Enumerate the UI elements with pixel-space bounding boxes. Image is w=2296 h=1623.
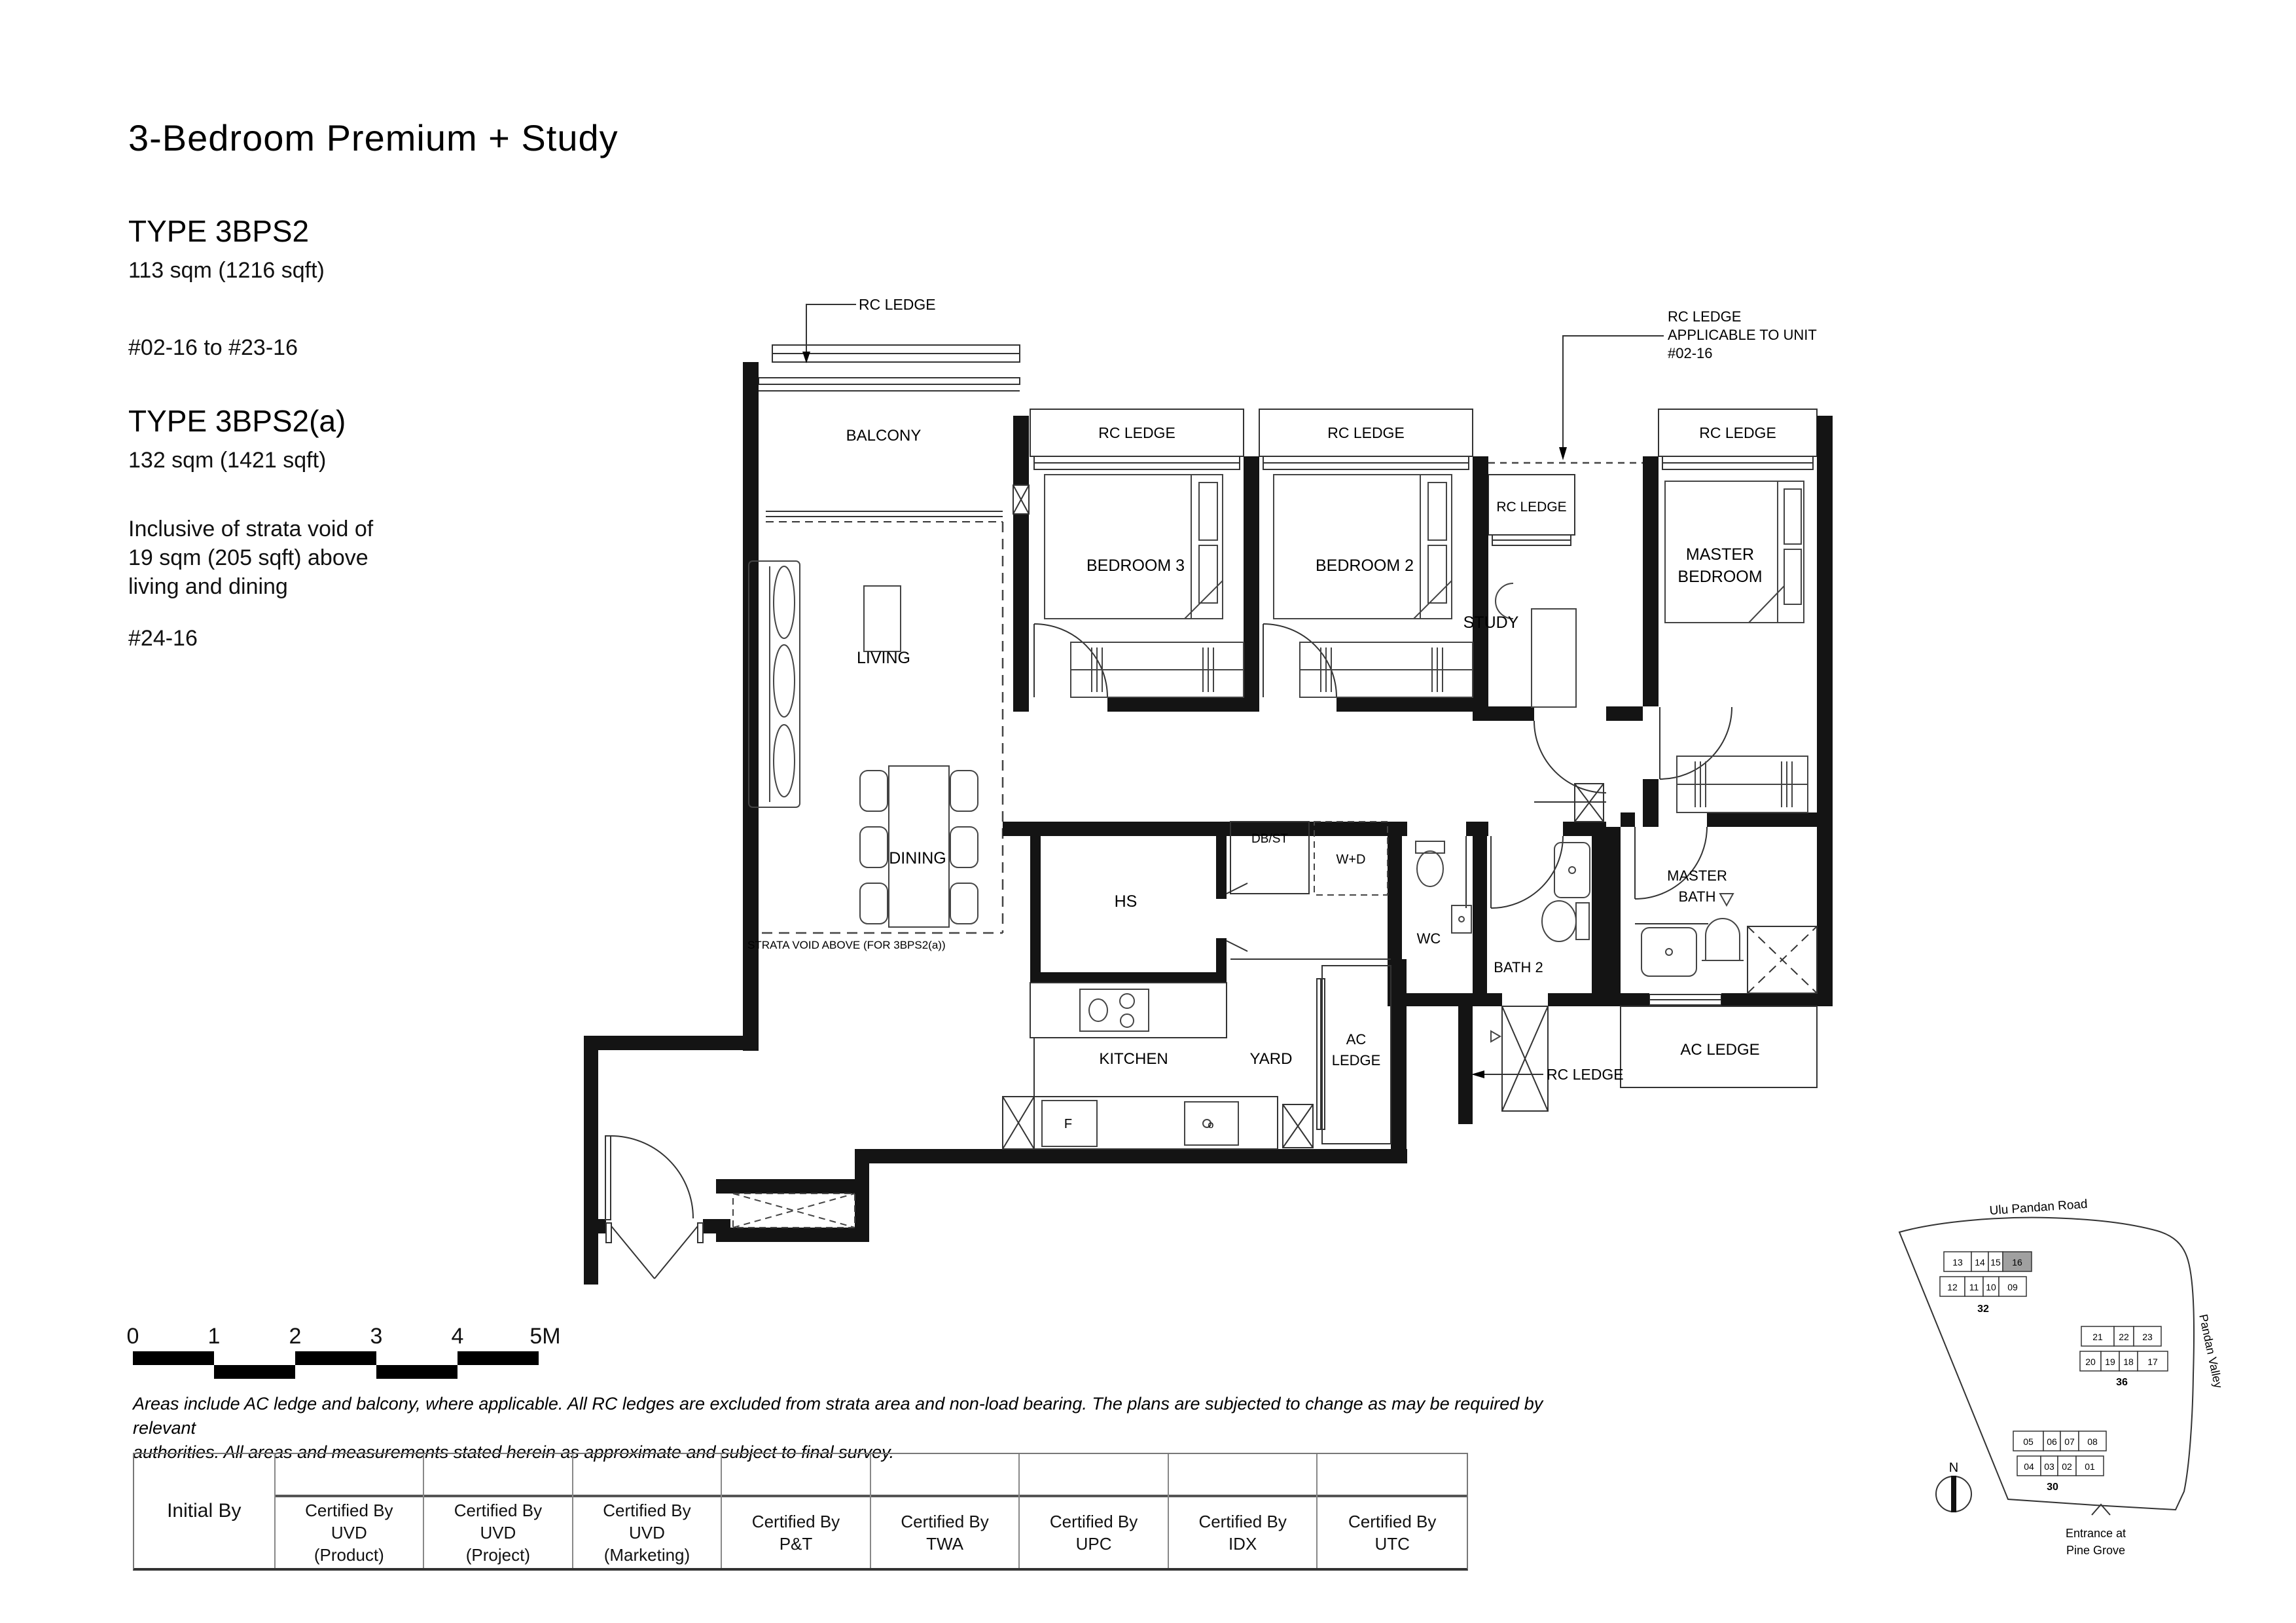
- cert-col-uvd-product: Certified ByUVD(Product): [276, 1454, 425, 1568]
- wc-toilet: [1416, 841, 1444, 886]
- coffee-table: [864, 586, 901, 651]
- site-unit-label-08: 08: [2087, 1436, 2098, 1447]
- site-unit-label-21: 21: [2092, 1332, 2103, 1342]
- site-unit-label-13: 13: [1952, 1257, 1963, 1267]
- bath2-label: BATH 2: [1494, 959, 1543, 976]
- site-unit-label-17: 17: [2147, 1357, 2158, 1367]
- shower-marker: [1720, 894, 1733, 905]
- site-plan: 1314151612111009322122232019181736050607…: [1898, 1178, 2291, 1597]
- type-1-name: TYPE 3BPS2: [128, 213, 325, 249]
- site-unit-label-01: 01: [2085, 1461, 2095, 1472]
- cert-org: UPC: [1076, 1533, 1112, 1555]
- cert-label: Certified By: [901, 1510, 988, 1533]
- rc-ledge-master-label: RC LEDGE: [1699, 424, 1776, 441]
- cert-org: UVD: [331, 1522, 367, 1544]
- entrance-label-2: Pine Grove: [2066, 1544, 2125, 1557]
- master-bedroom-label-1: MASTER: [1686, 545, 1754, 564]
- wardrobe-master: [1677, 756, 1808, 812]
- site-unit-label-09: 09: [2007, 1282, 2018, 1292]
- bed-bedroom3: [1045, 475, 1223, 619]
- site-unit-label-23: 23: [2142, 1332, 2153, 1342]
- bedroom2-label: BEDROOM 2: [1316, 556, 1414, 575]
- dining-set: [860, 766, 978, 927]
- site-unit-label-20: 20: [2085, 1357, 2096, 1367]
- rc-ledge-mid-label: RC LEDGE: [1496, 500, 1566, 515]
- master-bath-label-2: BATH: [1678, 888, 1715, 905]
- cert-label: Certified By: [752, 1510, 840, 1533]
- cert-org: UTC: [1374, 1533, 1409, 1555]
- signature-cell[interactable]: [722, 1454, 870, 1497]
- certification-table: Initial By Certified ByUVD(Product) Cert…: [133, 1453, 1468, 1571]
- site-block-label-30: 30: [2047, 1482, 2058, 1493]
- cert-org: TWA: [926, 1533, 963, 1555]
- scale-2: 2: [289, 1324, 302, 1349]
- floor-plan-drawing: RC LEDGEBALCONYRC LEDGERC LEDGERC LEDGER…: [576, 278, 1833, 1286]
- cert-col-upc: Certified ByUPC: [1020, 1454, 1169, 1568]
- balcony-railing: [759, 378, 1020, 522]
- kitchen-label: KITCHEN: [1099, 1050, 1168, 1068]
- signature-cell[interactable]: [424, 1454, 572, 1497]
- site-unit-label-15: 15: [1990, 1257, 2001, 1267]
- cert-sub: (Project): [466, 1544, 530, 1566]
- site-unit-label-14: 14: [1975, 1257, 1985, 1267]
- bed-bedroom2: [1274, 475, 1452, 619]
- site-unit-label-18: 18: [2123, 1357, 2134, 1367]
- ac-ledge-yard-label-2: LEDGE: [1332, 1052, 1381, 1068]
- cert-col-twa: Certified ByTWA: [871, 1454, 1020, 1568]
- cert-org: UVD: [629, 1522, 665, 1544]
- master-bath-toilet: [1702, 919, 1744, 960]
- hs-label: HS: [1115, 892, 1138, 911]
- balcony-label: BALCONY: [846, 427, 922, 445]
- ledge-strip-bath2: [1502, 1006, 1548, 1111]
- cert-org: P&T: [780, 1533, 813, 1555]
- scale-3: 3: [370, 1324, 383, 1349]
- cert-col-utc: Certified ByUTC: [1318, 1454, 1467, 1568]
- shower-master-bath: [1748, 926, 1817, 993]
- signature-cell[interactable]: [1318, 1454, 1467, 1497]
- site-unit-label-05: 05: [2023, 1436, 2034, 1447]
- site-unit-label-07: 07: [2064, 1436, 2075, 1447]
- scale-bar-segments: [133, 1351, 539, 1379]
- road-ulu-pandan: Ulu Pandan Road: [1989, 1197, 2088, 1218]
- site-unit-label-16: 16: [2012, 1257, 2022, 1267]
- site-unit-label-12: 12: [1947, 1282, 1958, 1292]
- type-2-note: Inclusive of strata void of 19 sqm (205 …: [128, 515, 373, 601]
- door-main-entry: [605, 1136, 693, 1220]
- living-label: LIVING: [857, 649, 910, 667]
- disclaimer-line1: Areas include AC ledge and balcony, wher…: [133, 1392, 1547, 1440]
- rc-applicable-line2: APPLICABLE TO UNIT: [1668, 327, 1817, 343]
- column-kitchen-left: [1003, 1097, 1034, 1149]
- site-unit-label-11: 11: [1969, 1282, 1979, 1292]
- type-2-area: 132 sqm (1421 sqft): [128, 448, 346, 473]
- type-2-note-line1: Inclusive of strata void of: [128, 515, 373, 543]
- site-unit-label-10: 10: [1986, 1282, 1996, 1292]
- type-2-units: #24-16: [128, 626, 198, 651]
- north-label: N: [1949, 1461, 1958, 1475]
- signature-cell[interactable]: [1020, 1454, 1168, 1497]
- rc-ledge-top-label: RC LEDGE: [859, 296, 936, 313]
- type-2-note-line3: living and dining: [128, 572, 373, 601]
- cert-label: Certified By: [1348, 1510, 1436, 1533]
- cert-col-idx: Certified ByIDX: [1169, 1454, 1318, 1568]
- type-1-block: TYPE 3BPS2 113 sqm (1216 sqft): [128, 213, 325, 283]
- scale-4: 4: [452, 1324, 464, 1349]
- type-2-name: TYPE 3BPS2(a): [128, 403, 346, 439]
- rc-ledge-br3-label: RC LEDGE: [1098, 424, 1175, 441]
- door-double-leaf: [606, 1223, 703, 1279]
- road-pandan-valley: Pandan Valley: [2197, 1313, 2225, 1389]
- site-unit-label-02: 02: [2062, 1461, 2072, 1472]
- dbst-label: DB/ST: [1251, 832, 1288, 846]
- north-indicator: [1936, 1476, 1971, 1512]
- scale-0: 0: [127, 1324, 139, 1349]
- wardrobe-bedroom2: [1300, 642, 1473, 697]
- cert-label: Certified By: [1050, 1510, 1138, 1533]
- door-bath2: [1491, 836, 1563, 908]
- cert-label: Certified By: [603, 1499, 691, 1522]
- walls: [584, 362, 1833, 1285]
- cert-col-uvd-marketing: Certified ByUVD(Marketing): [573, 1454, 723, 1568]
- bath2-sink: [1554, 843, 1590, 898]
- type-1-units: #02-16 to #23-16: [128, 335, 298, 361]
- ac-ledge-yard-label-1: AC: [1346, 1031, 1367, 1048]
- wc-sink: [1452, 905, 1471, 933]
- column-yard: [1283, 1104, 1313, 1148]
- scale-1: 1: [208, 1324, 221, 1349]
- site-block-label-32: 32: [1977, 1304, 1989, 1315]
- bedroom3-label: BEDROOM 3: [1086, 556, 1185, 575]
- study-desk: [1496, 583, 1576, 707]
- wardrobe-bedroom3: [1071, 642, 1244, 697]
- ledge-marker: [1491, 1031, 1500, 1042]
- site-unit-label-19: 19: [2105, 1357, 2115, 1367]
- rc-ledge-br2-label: RC LEDGE: [1327, 424, 1405, 441]
- signature-cell[interactable]: [871, 1454, 1019, 1497]
- cert-label: Certified By: [454, 1499, 542, 1522]
- rc-applicable-line1: RC LEDGE: [1668, 308, 1741, 325]
- cert-org: UVD: [480, 1522, 516, 1544]
- site-labels: Ulu Pandan RoadPandan ValleyEntrance atP…: [1949, 1197, 2225, 1557]
- type-1-area: 113 sqm (1216 sqft): [128, 258, 325, 283]
- site-unit-label-04: 04: [2024, 1461, 2034, 1472]
- cert-sub: (Marketing): [604, 1544, 690, 1566]
- page-title: 3-Bedroom Premium + Study: [128, 117, 619, 159]
- yard-label: YARD: [1250, 1050, 1293, 1068]
- master-bedroom-label-2: BEDROOM: [1677, 568, 1762, 586]
- type-2-block: TYPE 3BPS2(a) 132 sqm (1421 sqft): [128, 403, 346, 473]
- cert-label: Certified By: [305, 1499, 393, 1522]
- signature-cell[interactable]: [1169, 1454, 1317, 1497]
- initial-by-cell: Initial By: [134, 1454, 276, 1568]
- dining-label: DINING: [889, 849, 946, 867]
- scale-bar: 0 1 2 3 4 5M: [133, 1324, 539, 1383]
- cert-col-uvd-project: Certified ByUVD(Project): [424, 1454, 573, 1568]
- rc-applicable-line3: #02-16: [1668, 345, 1713, 361]
- bath2-toilet: [1542, 901, 1589, 941]
- signature-cell[interactable]: [276, 1454, 423, 1497]
- fridge-label: F: [1064, 1117, 1072, 1131]
- rc-ledge-arrow-label: RC LEDGE: [1547, 1066, 1624, 1083]
- site-unit-label-03: 03: [2044, 1461, 2054, 1472]
- site-units: 1314151612111009322122232019181736050607…: [1940, 1252, 2168, 1493]
- strata-void-label: STRATA VOID ABOVE (FOR 3BPS2(a)): [747, 939, 946, 951]
- oven-label: o: [1208, 1120, 1214, 1131]
- site-block-label-36: 36: [2116, 1377, 2128, 1388]
- scale-bar-numbers: 0 1 2 3 4 5M: [133, 1324, 539, 1351]
- type-2-note-line2: 19 sqm (205 sqft) above: [128, 543, 373, 572]
- rc-ledge-outlines: [772, 345, 1817, 535]
- ac-ledge-right-label: AC LEDGE: [1680, 1041, 1759, 1059]
- cert-sub: (Product): [314, 1544, 384, 1566]
- column-balcony: [1013, 485, 1029, 514]
- site-unit-label-06: 06: [2047, 1436, 2057, 1447]
- dashed-boxes: [733, 822, 1388, 1228]
- floorplan-page: 3-Bedroom Premium + Study TYPE 3BPS2 113…: [0, 0, 2296, 1623]
- cert-org: IDX: [1229, 1533, 1257, 1555]
- wd-label: W+D: [1336, 852, 1366, 867]
- entrance-label-1: Entrance at: [2066, 1527, 2126, 1540]
- master-bath-sink: [1641, 928, 1696, 976]
- stove: [1080, 989, 1149, 1031]
- signature-cell[interactable]: [573, 1454, 721, 1497]
- cert-label: Certified By: [1198, 1510, 1286, 1533]
- study-label: STUDY: [1463, 613, 1519, 632]
- master-bath-label-1: MASTER: [1667, 867, 1727, 884]
- scale-5: 5M: [529, 1324, 560, 1349]
- site-unit-label-22: 22: [2119, 1332, 2129, 1342]
- cert-col-pt: Certified ByP&T: [722, 1454, 871, 1568]
- wc-label: WC: [1417, 930, 1441, 947]
